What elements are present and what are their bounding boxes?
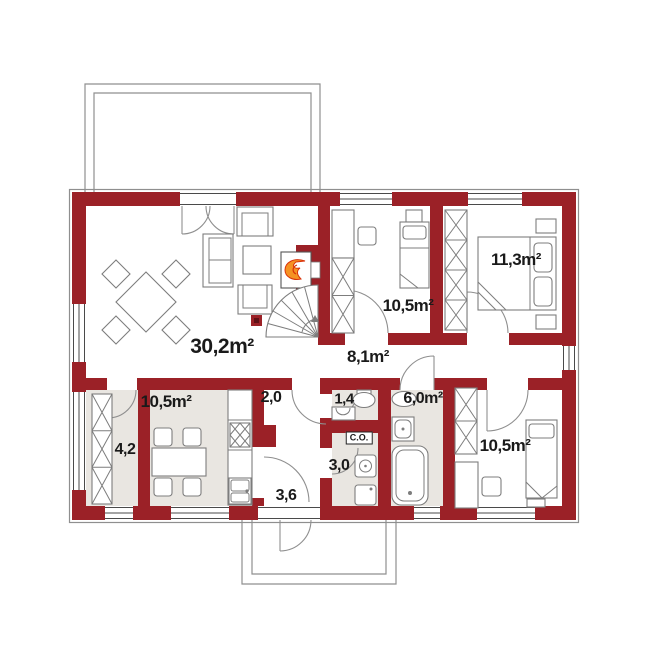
window-icon [477,506,535,520]
washbasin-icon [355,455,376,477]
terrace-door [180,192,236,234]
door-swing-icon [400,356,434,390]
window-icon [468,192,522,206]
wardrobe-icon [445,210,467,330]
bathtub-icon [392,446,428,505]
bed-icon [478,219,556,329]
room-label-bedroom-top: 10,5m² [383,296,434,316]
room-label-corridor: 3,6 [276,487,297,505]
window-icon [72,304,86,362]
room-label-bedroom-right: 11,3m² [491,250,541,270]
room-label-vestibule: 2,0 [261,389,282,407]
stove-icon [230,423,250,447]
bed-icon [400,210,429,288]
door-swing-icon [487,390,528,431]
dining-table-icon [102,260,190,344]
window-icon [171,506,229,520]
sink-icon [332,407,355,420]
wardrobe-icon [455,388,477,454]
window-icon [72,392,86,490]
room-label-utility-room: 3,0 [329,457,350,475]
room-label-bathroom: 6,0m² [403,390,442,408]
bed-icon [526,420,557,507]
washer-icon [355,485,376,505]
room-label-wc: 1,4 [334,391,353,408]
window-icon [105,506,133,520]
terrace-outline [85,84,320,192]
porch-outline [242,520,396,584]
wardrobe-icon [92,394,112,504]
bedroom-right-furniture [445,210,556,330]
chair [482,477,501,496]
window-icon [414,506,440,520]
floor-plan-drawing [0,0,660,666]
wardrobe-icon [332,258,354,333]
sofa-icon [203,207,273,314]
sink-icon [229,478,251,504]
room-label-pantry: 4,2 [115,441,136,459]
window-icon [562,346,576,370]
room-label-kitchen: 10,5m² [141,392,192,412]
chair [358,227,376,245]
stove-point [251,315,262,326]
window-icon [340,192,392,206]
spiral-stairs-icon [266,285,319,337]
desk [455,462,478,508]
desk [332,210,354,258]
room-label-living-room: 30,2m² [190,335,254,359]
floor-plan: 30,2m² 10,5m² 4,2 8,1m² 2,0 3,6 1,4 6,0m… [0,0,660,666]
washbasin-icon [392,417,414,441]
room-label-bedroom-bottom: 10,5m² [480,436,531,456]
room-label-hall: 8,1m² [347,347,389,367]
boiler-co-box: C.O. [346,432,373,445]
